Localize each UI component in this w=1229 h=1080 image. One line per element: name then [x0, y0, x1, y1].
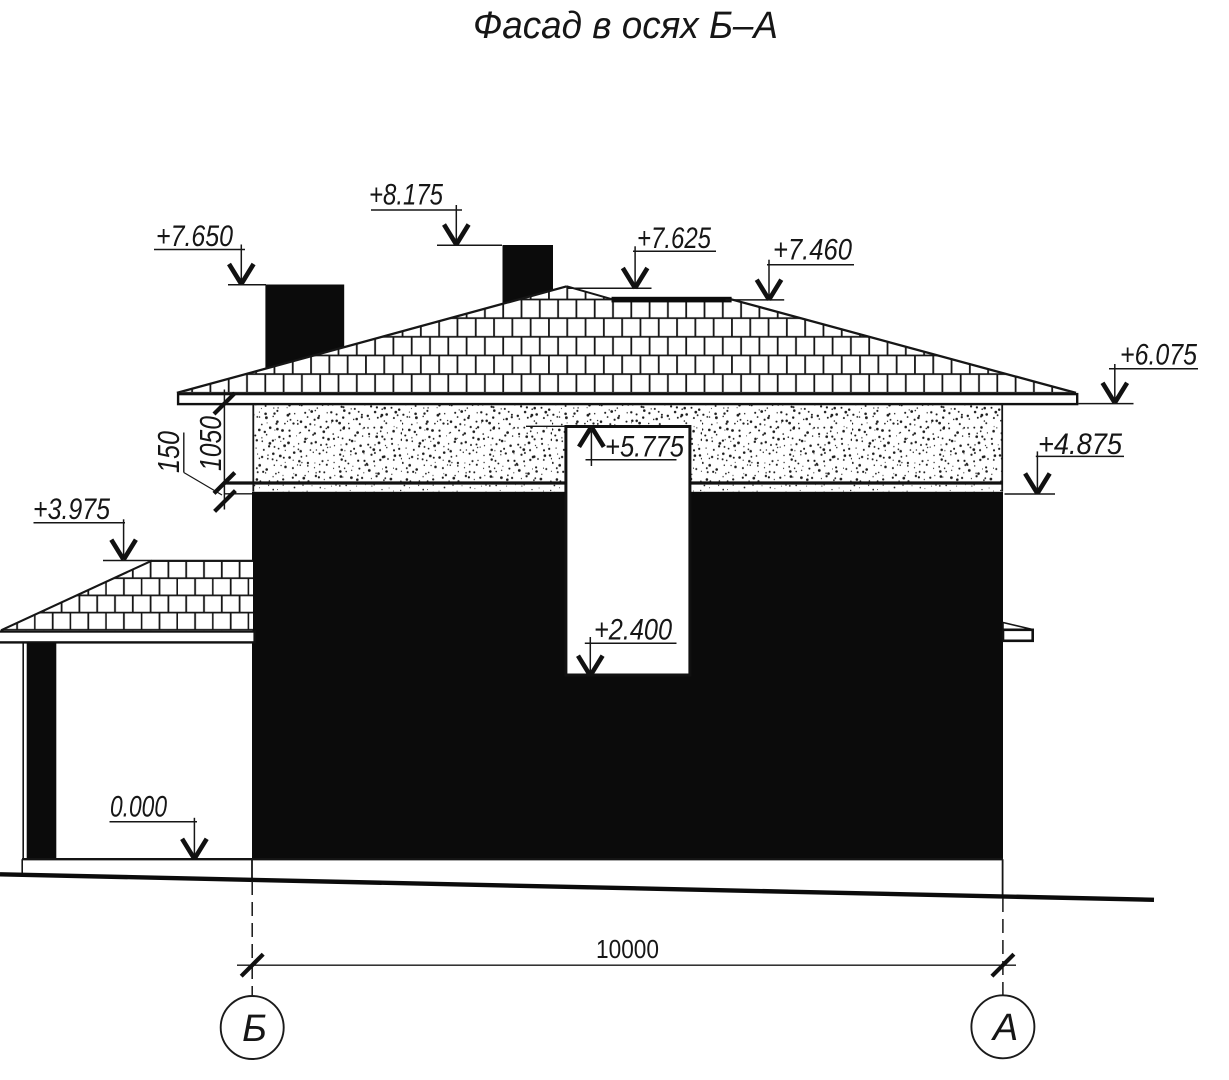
svg-text:1050: 1050	[193, 416, 228, 471]
svg-text:Фасад в осях Б–А: Фасад в осях Б–А	[473, 5, 778, 47]
svg-text:+6.075: +6.075	[1120, 339, 1197, 372]
svg-text:0.000: 0.000	[110, 791, 167, 824]
svg-text:10000: 10000	[596, 934, 659, 964]
svg-text:+8.175: +8.175	[369, 179, 443, 212]
svg-text:Б: Б	[242, 1008, 267, 1050]
svg-text:+3.975: +3.975	[33, 493, 110, 526]
svg-text:+2.400: +2.400	[594, 614, 672, 647]
svg-text:А: А	[991, 1007, 1018, 1049]
svg-text:+5.775: +5.775	[605, 431, 684, 464]
svg-text:+7.625: +7.625	[637, 222, 711, 255]
svg-text:+7.650: +7.650	[156, 220, 233, 253]
svg-text:150: 150	[151, 431, 186, 473]
svg-text:+7.460: +7.460	[773, 234, 852, 267]
